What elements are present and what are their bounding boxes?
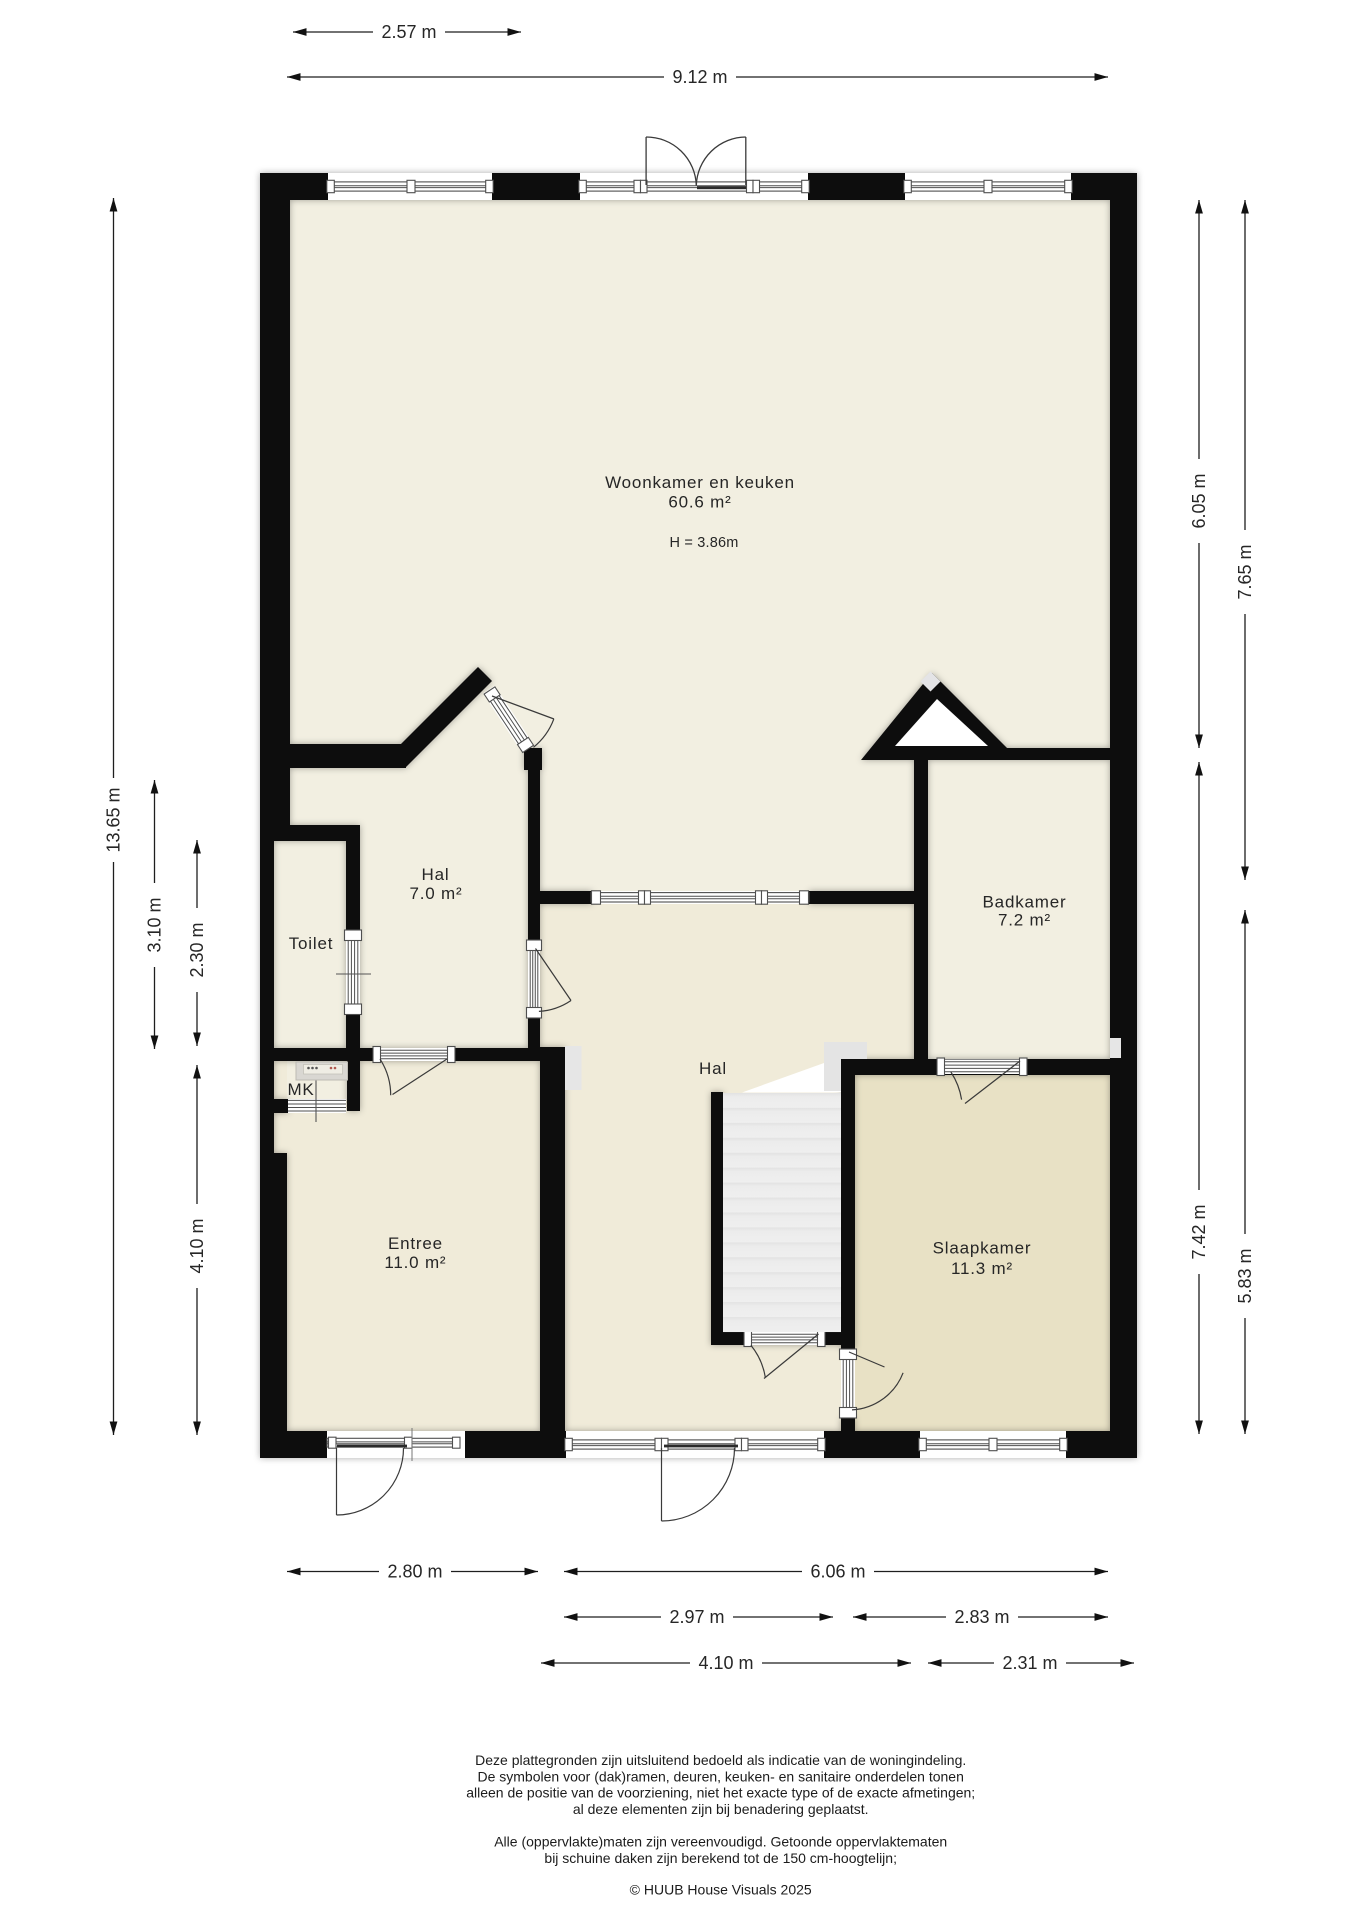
svg-text:6.06 m: 6.06 m [810, 1562, 865, 1582]
svg-text:Woonkamer en keuken: Woonkamer en keuken [605, 473, 795, 492]
svg-text:al deze elementen zijn bij ben: al deze elementen zijn bij benadering ge… [573, 1801, 869, 1817]
svg-text:Alle (oppervlakte)maten zijn v: Alle (oppervlakte)maten zijn vereenvoudi… [494, 1834, 947, 1850]
svg-text:alleen de positie van de voorz: alleen de positie van de voorziening, ni… [466, 1785, 975, 1801]
svg-text:Hal: Hal [422, 865, 450, 884]
svg-text:Toilet: Toilet [289, 934, 334, 953]
svg-text:Hal: Hal [699, 1059, 727, 1078]
svg-text:bij schuine daken zijn bereken: bij schuine daken zijn berekend tot de 1… [544, 1850, 897, 1866]
svg-text:2.30 m: 2.30 m [187, 922, 207, 977]
svg-text:Badkamer: Badkamer [983, 893, 1067, 912]
svg-text:5.83 m: 5.83 m [1235, 1248, 1255, 1303]
svg-text:Deze plattegronden zijn uitslu: Deze plattegronden zijn uitsluitend bedo… [475, 1752, 966, 1768]
svg-text:Slaapkamer: Slaapkamer [933, 1239, 1032, 1258]
svg-text:2.83 m: 2.83 m [954, 1607, 1009, 1627]
svg-text:De symbolen voor (dak)ramen, d: De symbolen voor (dak)ramen, deuren, keu… [477, 1768, 963, 1784]
svg-text:9.12 m: 9.12 m [672, 67, 727, 87]
svg-text:4.10 m: 4.10 m [187, 1218, 207, 1273]
svg-text:11.3 m²: 11.3 m² [951, 1259, 1013, 1278]
svg-text:2.57 m: 2.57 m [381, 22, 436, 42]
svg-text:3.10 m: 3.10 m [145, 897, 165, 952]
svg-text:2.31 m: 2.31 m [1002, 1653, 1057, 1673]
svg-text:7.2 m²: 7.2 m² [998, 911, 1051, 930]
svg-text:6.05 m: 6.05 m [1189, 473, 1209, 528]
svg-text:Entree: Entree [388, 1234, 443, 1253]
svg-text:11.0 m²: 11.0 m² [384, 1253, 446, 1272]
svg-text:60.6 m²: 60.6 m² [668, 493, 731, 512]
svg-text:H = 3.86m: H = 3.86m [669, 535, 738, 551]
svg-text:7.42 m: 7.42 m [1189, 1204, 1209, 1259]
svg-text:MK: MK [287, 1080, 314, 1099]
svg-text:7.65 m: 7.65 m [1235, 544, 1255, 599]
svg-text:7.0 m²: 7.0 m² [410, 884, 463, 903]
svg-text:© HUUB House Visuals 2025: © HUUB House Visuals 2025 [630, 1881, 812, 1897]
svg-text:2.80 m: 2.80 m [387, 1562, 442, 1582]
svg-text:2.97 m: 2.97 m [669, 1607, 724, 1627]
svg-text:4.10 m: 4.10 m [698, 1653, 753, 1673]
svg-text:13.65 m: 13.65 m [104, 787, 124, 852]
